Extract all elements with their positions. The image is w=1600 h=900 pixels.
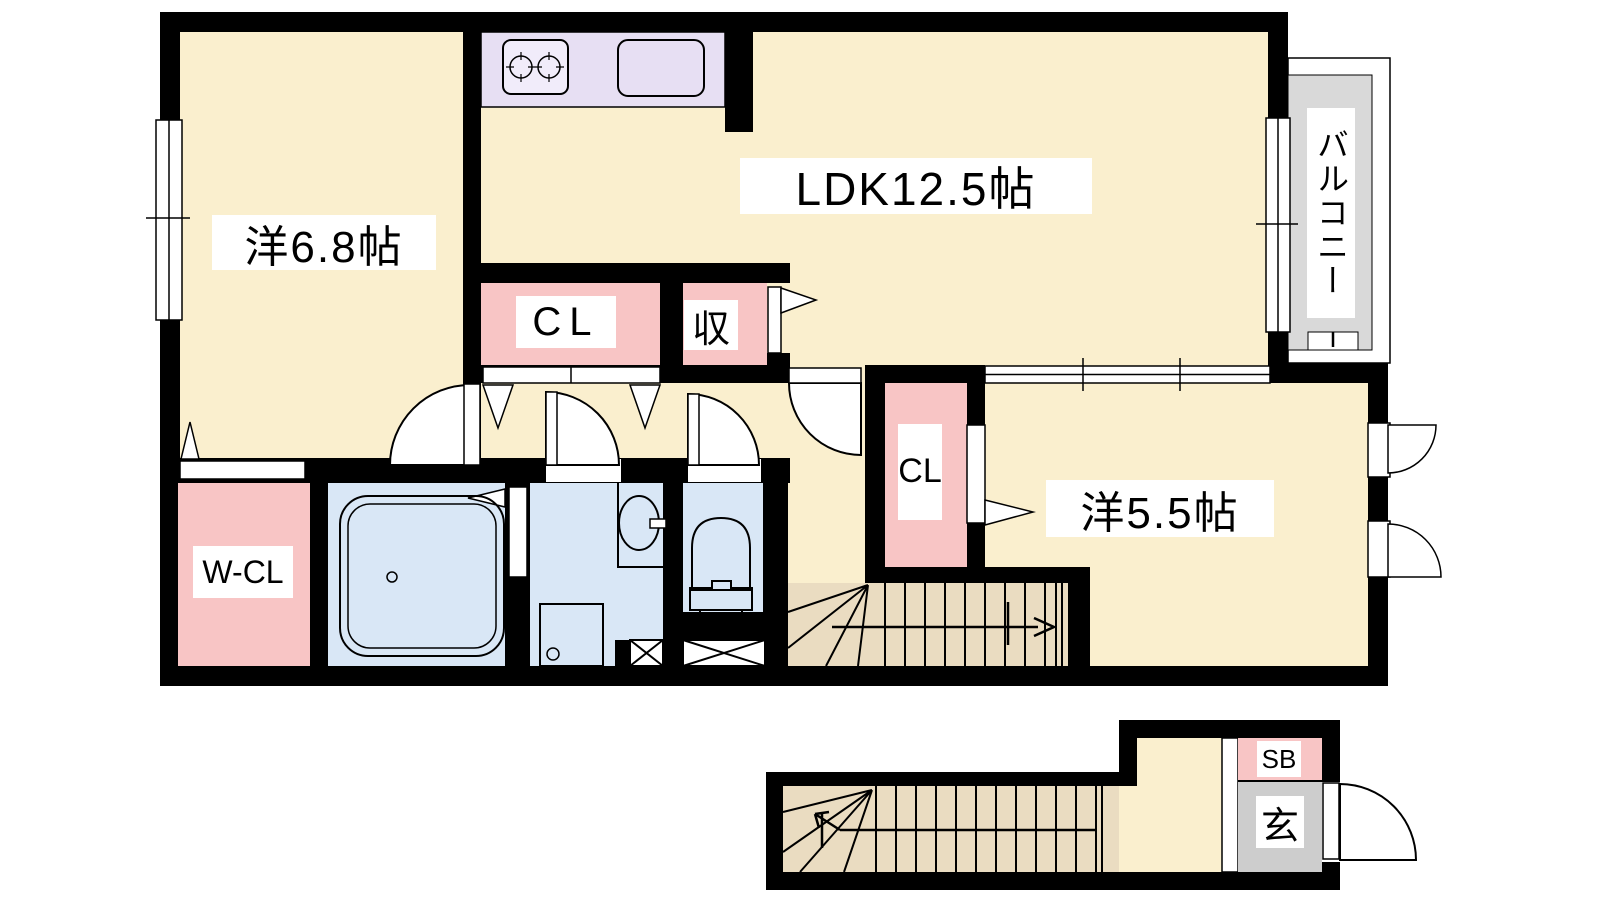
floor-east (1268, 383, 1368, 666)
label-balcony: バルコニー (1307, 108, 1355, 318)
entrance-section (766, 720, 1416, 890)
entrance-step (1222, 738, 1238, 872)
label-closet-side: CL (898, 424, 942, 520)
floor-plan: 洋6.8帖 LDK12.5帖 CL 収 バルコニー CL 洋5.5帖 W-CL … (0, 0, 1600, 900)
basin-faucet (650, 519, 666, 528)
pipe-shafts (630, 640, 765, 666)
washroom-floor (530, 483, 663, 666)
label-west-room-55: 洋5.5帖 (1046, 480, 1274, 537)
window-casement-1 (1368, 423, 1436, 477)
window-casement-2 (1368, 521, 1441, 577)
entrance-door (1322, 782, 1416, 862)
label-west-room-68: 洋6.8帖 (212, 215, 436, 270)
label-shoe-box: SB (1257, 741, 1301, 777)
label-storage: 収 (684, 300, 738, 350)
floor-plan-drawing (0, 0, 1600, 900)
label-closet-top: CL (516, 296, 616, 348)
label-wcl: W-CL (193, 546, 293, 598)
label-ldk: LDK12.5帖 (740, 158, 1092, 214)
label-entrance: 玄 (1256, 796, 1304, 848)
